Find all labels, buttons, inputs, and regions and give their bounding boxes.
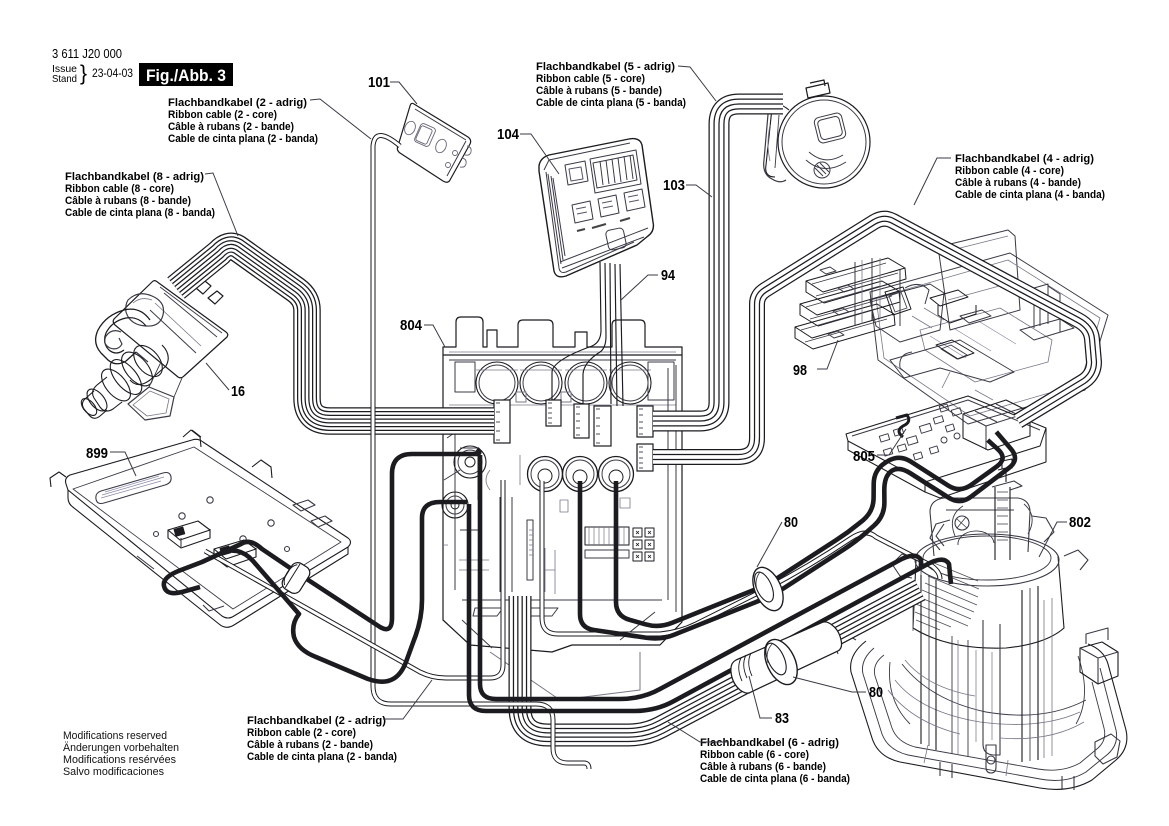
svg-text:98: 98 bbox=[793, 363, 807, 379]
svg-text:Modifications reserved: Modifications reserved bbox=[63, 730, 167, 742]
svg-text:}: } bbox=[80, 62, 87, 85]
svg-text:Flachbandkabel (8 - adrig): Flachbandkabel (8 - adrig) bbox=[65, 171, 204, 183]
svg-text:Cable de cinta plana (6 - band: Cable de cinta plana (6 - banda) bbox=[700, 773, 850, 785]
svg-text:Cable de cinta plana (2 - band: Cable de cinta plana (2 - banda) bbox=[247, 751, 397, 763]
svg-text:802: 802 bbox=[1069, 515, 1091, 531]
svg-text:Câble à rubans (6 - bande): Câble à rubans (6 - bande) bbox=[700, 761, 826, 773]
svg-text:Câble à rubans (8 - bande): Câble à rubans (8 - bande) bbox=[65, 195, 191, 207]
svg-text:80: 80 bbox=[869, 685, 883, 701]
svg-text:101: 101 bbox=[368, 75, 390, 91]
svg-text:Modifications resérvées: Modifications resérvées bbox=[63, 754, 176, 766]
svg-text:899: 899 bbox=[86, 446, 108, 462]
svg-text:16: 16 bbox=[231, 384, 245, 400]
svg-text:Ribbon cable (5 - core): Ribbon cable (5 - core) bbox=[536, 73, 645, 85]
svg-text:83: 83 bbox=[775, 711, 789, 727]
svg-text:Ribbon cable (6 - core): Ribbon cable (6 - core) bbox=[700, 749, 809, 761]
svg-text:Cable de cinta plana (5 - band: Cable de cinta plana (5 - banda) bbox=[536, 97, 686, 109]
svg-text:23-04-03: 23-04-03 bbox=[92, 68, 133, 80]
svg-text:805: 805 bbox=[853, 449, 875, 465]
svg-text:Flachbandkabel (2 - adrig): Flachbandkabel (2 - adrig) bbox=[168, 97, 307, 109]
svg-text:103: 103 bbox=[663, 178, 685, 194]
svg-text:Cable de cinta plana (2 - band: Cable de cinta plana (2 - banda) bbox=[168, 133, 318, 145]
svg-text:Câble à rubans (5 - bande): Câble à rubans (5 - bande) bbox=[536, 85, 662, 97]
svg-text:Câble à rubans (4 - bande): Câble à rubans (4 - bande) bbox=[955, 177, 1081, 189]
svg-text:Flachbandkabel (6 - adrig): Flachbandkabel (6 - adrig) bbox=[700, 737, 839, 749]
svg-text:Änderungen vorbehalten: Änderungen vorbehalten bbox=[63, 742, 179, 754]
svg-text:Stand: Stand bbox=[52, 74, 77, 85]
svg-text:104: 104 bbox=[497, 127, 519, 143]
svg-text:Cable de cinta plana (8 - band: Cable de cinta plana (8 - banda) bbox=[65, 207, 215, 219]
svg-text:Câble à rubans (2 - bande): Câble à rubans (2 - bande) bbox=[247, 739, 373, 751]
svg-text:Ribbon cable (4 - core): Ribbon cable (4 - core) bbox=[955, 165, 1064, 177]
svg-text:Fig./Abb. 3: Fig./Abb. 3 bbox=[146, 67, 226, 85]
svg-text:Cable de cinta plana (4 - band: Cable de cinta plana (4 - banda) bbox=[955, 189, 1105, 201]
svg-text:3 611 J20 000: 3 611 J20 000 bbox=[52, 47, 122, 61]
svg-text:Ribbon cable (2 - core): Ribbon cable (2 - core) bbox=[247, 727, 356, 739]
svg-text:Flachbandkabel (4 - adrig): Flachbandkabel (4 - adrig) bbox=[955, 153, 1094, 165]
svg-text:Câble à rubans (2 - bande): Câble à rubans (2 - bande) bbox=[168, 121, 294, 133]
svg-text:Flachbandkabel (5 - adrig): Flachbandkabel (5 - adrig) bbox=[536, 61, 675, 73]
svg-text:80: 80 bbox=[784, 515, 798, 531]
svg-text:804: 804 bbox=[400, 318, 422, 334]
svg-text:94: 94 bbox=[661, 268, 675, 284]
svg-text:Salvo modificaciones: Salvo modificaciones bbox=[63, 766, 164, 778]
svg-text:Flachbandkabel (2 - adrig): Flachbandkabel (2 - adrig) bbox=[247, 715, 386, 727]
svg-text:Ribbon cable (8 - core): Ribbon cable (8 - core) bbox=[65, 183, 174, 195]
svg-text:Ribbon cable (2 - core): Ribbon cable (2 - core) bbox=[168, 109, 277, 121]
